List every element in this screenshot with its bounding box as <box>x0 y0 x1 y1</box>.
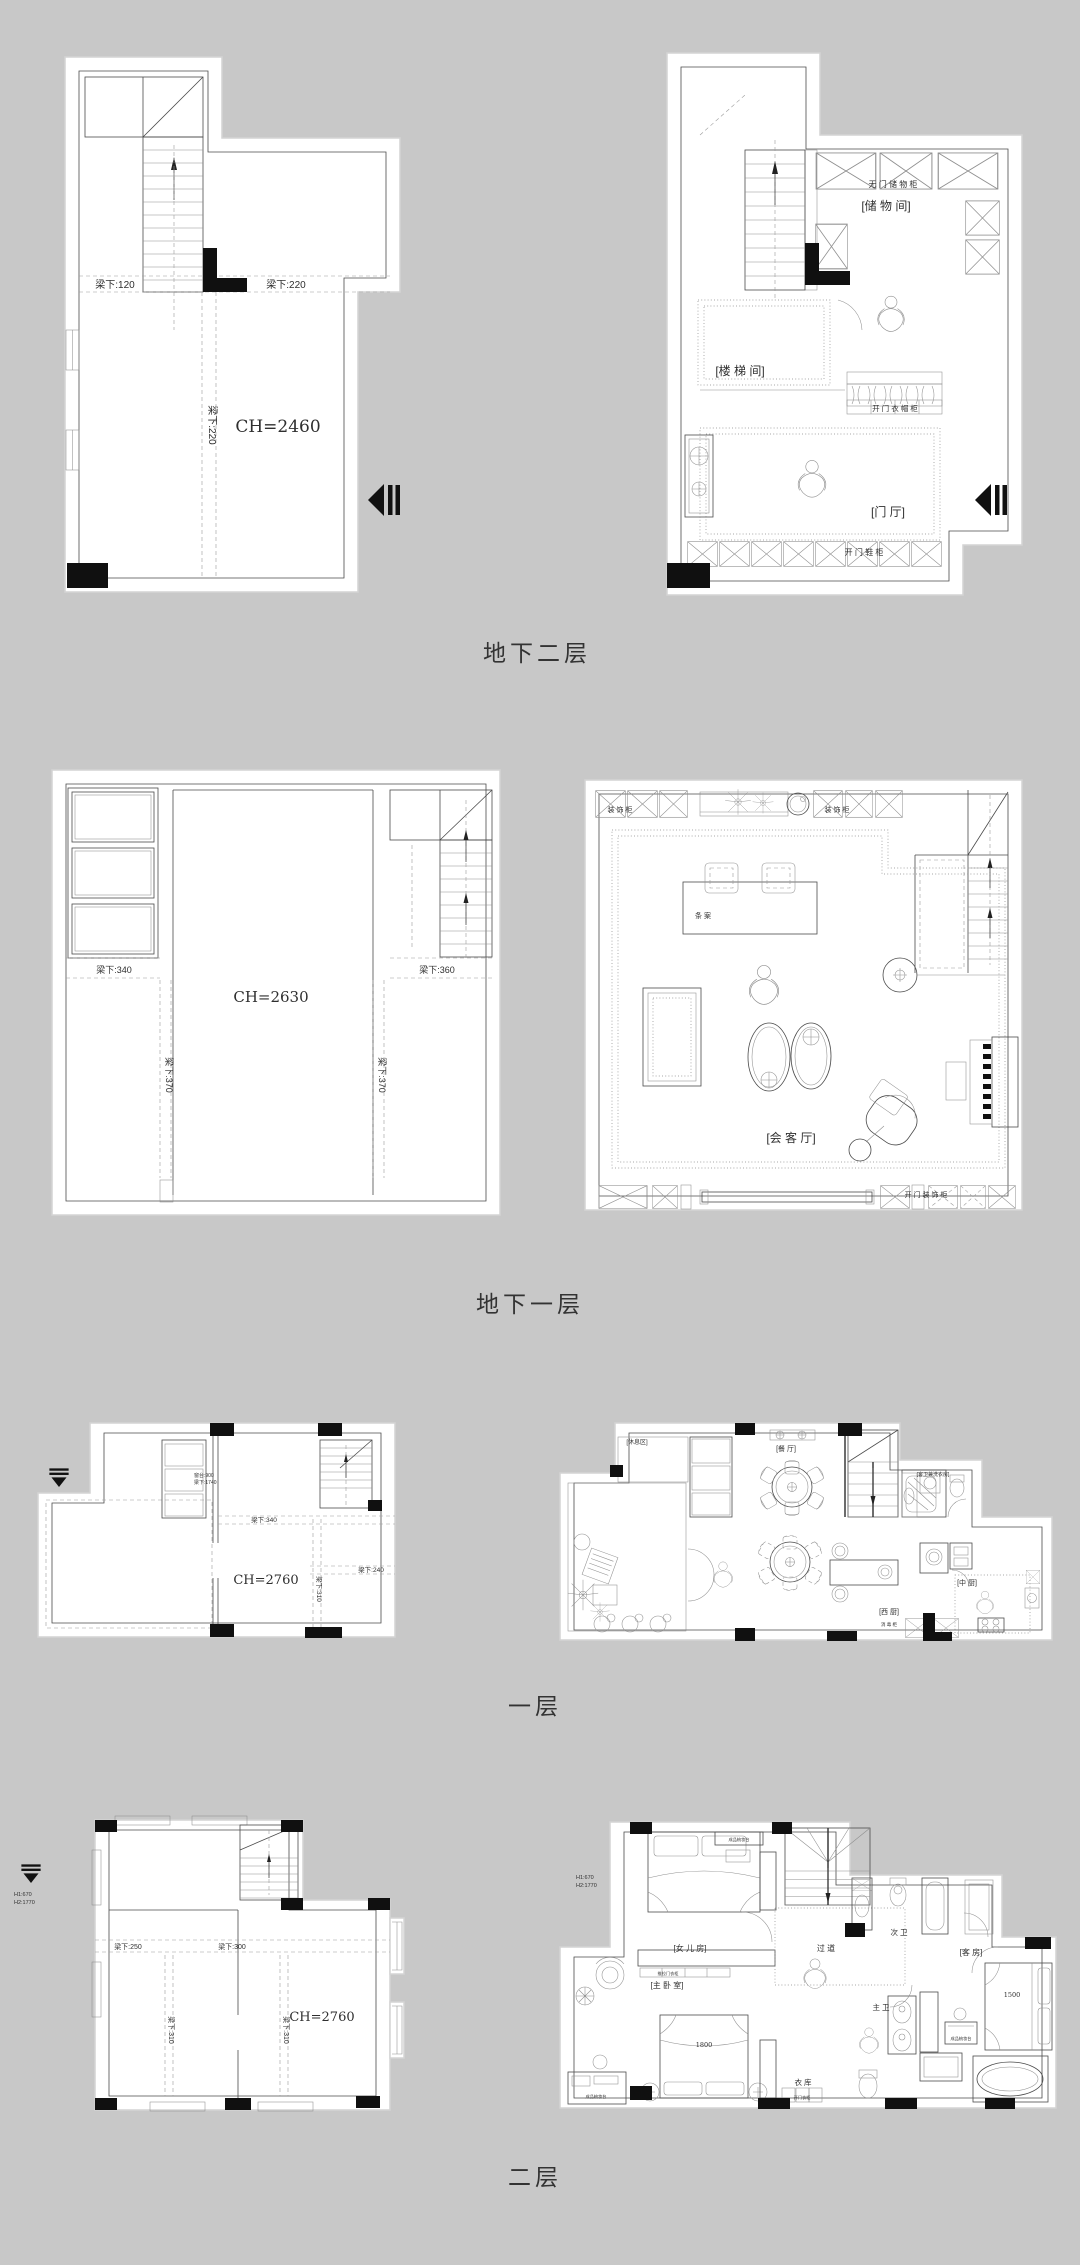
f1f-room-guest-bath-label: [客卫兼洗衣房] <box>917 1471 950 1478</box>
b2f-room-storage-label: [储 物 间] <box>861 198 910 213</box>
f1f-room-west-kitchen-label: [西 厨] <box>879 1608 899 1616</box>
plan-f1-furnished: [休息区] [餐 厅] [客卫兼洗衣房] [西 厨] 消 毒 柜 [中 厨] <box>560 1423 1052 1641</box>
f2f-bath-master-label: 主 卫 <box>872 2002 890 2012</box>
b2f-wardrobe-label: 开 门 衣 帽 柜 <box>872 403 918 413</box>
b1f-room-reception-label: [会 客 厅] <box>766 1130 815 1145</box>
b1s-ceiling-label: CH=2630 <box>233 988 308 1006</box>
b1s-beam-vert2-label: 梁下:370 <box>377 1057 388 1093</box>
f2s-entry-arrow-icon <box>21 1864 40 1883</box>
b2s-entry-arrow-icon <box>368 484 400 516</box>
b1s-beam-left-label: 梁下:340 <box>96 964 132 975</box>
f2s-beam-left-label: 梁下:250 <box>114 1942 142 1951</box>
f2f-room-daughter-label: [女 儿 房] <box>674 1943 707 1953</box>
b2f-room-foyer-label: [门 厅] <box>871 504 905 519</box>
b1f-console-label: 条 案 <box>695 911 711 920</box>
f2s-beam-right-label: 梁下:300 <box>218 1942 246 1951</box>
b2f-column-bottom <box>667 563 710 588</box>
f1s-window-beam-label: 梁下:1740 <box>194 1479 217 1486</box>
b2s-column-bottom <box>67 563 108 588</box>
b1f-deco-bottom-label: 开 门 装 饰 柜 <box>905 1190 948 1199</box>
f2f-closet-label: 开门衣柜 <box>794 2094 811 2101</box>
b2f-room-stairwell-label: [楼 梯 间] <box>715 363 764 378</box>
plan-b2-furnished: 无 门 储 物 柜 [储 物 间] [楼 梯 间] 开 门 衣 帽 柜 [门 厅… <box>667 53 1022 595</box>
f2f-note-h1: H1:670 <box>576 1875 594 1881</box>
b1s-beam-right-label: 梁下:360 <box>419 964 455 975</box>
b1f-deco-left-label: 装 饰 柜 <box>608 805 633 814</box>
f2s-beam-vert1-label: 梁下:310 <box>167 2016 176 2044</box>
f2f-room-master-label: [主 卧 室] <box>651 1980 684 1990</box>
b2f-shoe-cabinet-label: 开 门 鞋 柜 <box>845 547 884 557</box>
f1f-cabinet-label: 消 毒 柜 <box>881 1621 898 1628</box>
floorplan-canvas: 梁下:120 梁下:220 梁下:220 CH=2460 <box>0 0 1080 2265</box>
f1f-room-rest-label: [休息区] <box>626 1438 648 1446</box>
b2s-ceiling-label: CH=2460 <box>235 417 320 437</box>
plan-b1-furnished: 装 饰 柜 装 饰 柜 条 案 [会 客 厅] 开 门 装 饰 柜 <box>585 780 1022 1210</box>
level-title-b2: 地下二层 <box>417 634 657 668</box>
f1f-room-dining-label: [餐 厅] <box>776 1444 796 1453</box>
level-title-f1: 一层 <box>415 1687 655 1721</box>
b1f-deco-right-label: 装 饰 柜 <box>825 805 850 814</box>
plan-b2-structural: 梁下:120 梁下:220 梁下:220 CH=2460 <box>65 57 400 592</box>
f1s-window-sill-label: 窗台:900 <box>194 1472 214 1479</box>
f2f-room-guest-label: [客 房] <box>960 1947 983 1957</box>
level-title-f2: 二层 <box>415 2158 655 2192</box>
b1s-beam-vert1-label: 梁下:370 <box>164 1057 175 1093</box>
b2f-cabinet-top-label: 无 门 储 物 柜 <box>869 179 918 189</box>
f2s-ceiling-label: CH=2760 <box>289 2010 354 2025</box>
b2s-beam-left-label: 梁下:120 <box>95 278 135 291</box>
f1s-beam-vert-label: 梁下:310 <box>315 1576 324 1602</box>
f1s-entry-arrow-icon <box>49 1468 68 1487</box>
plan-f1-structural: 窗台:900 梁下:1740 梁下:340 梁下:240 梁下:310 CH=2… <box>38 1423 395 1638</box>
floorplan-sheet: { "page": { "background": "#c8c8c8", "pa… <box>0 0 1080 2265</box>
f2f-wardrobe-label: 推拉门衣柜 <box>658 1970 679 1977</box>
b2s-beam-right-label: 梁下:220 <box>266 278 306 291</box>
f1s-beam-right-label: 梁下:240 <box>358 1565 384 1574</box>
f2f-bath-secondary-label: 次 卫 <box>890 1927 908 1937</box>
f2s-note-h2: H2:1770 <box>14 1900 35 1906</box>
f1f-room-chinese-kitchen-label: [中 厨] <box>957 1578 977 1587</box>
f2f-note-h2: H2:1770 <box>576 1883 597 1889</box>
f2f-bed-master-dim: 1800 <box>696 2041 713 2049</box>
f2f-bed-guest-dim: 1500 <box>1004 1991 1021 1999</box>
f2f-corridor-label: 过 道 <box>817 1943 835 1953</box>
plan-b1-structural: 梁下:340 梁下:360 梁下:370 梁下:370 CH=2630 <box>52 770 500 1215</box>
f2f-dresser3-label: 成品梳妆台 <box>951 2035 972 2042</box>
f1s-ceiling-label: CH=2760 <box>233 1573 298 1588</box>
b2s-beam-vert-label: 梁下:220 <box>206 405 219 445</box>
f2s-note-h1: H1:670 <box>14 1892 32 1898</box>
f2f-closet-room-label: 衣 库 <box>794 2077 812 2087</box>
f2f-dresser1-label: 成品梳妆台 <box>729 1836 750 1843</box>
plan-f2-furnished: H1:670 H2:1770 [女 儿 房] [主 卧 室] [客 房] 过 道… <box>560 1822 1056 2109</box>
plan-f2-structural: H1:670 H2:1770 梁下:250 梁下:300 梁下:310 梁下:3… <box>14 1816 404 2111</box>
f2f-dresser2-label: 成品梳妆台 <box>586 2093 607 2100</box>
level-title-b1: 地下一层 <box>410 1285 650 1319</box>
f1s-beam-mid-label: 梁下:340 <box>251 1515 277 1524</box>
